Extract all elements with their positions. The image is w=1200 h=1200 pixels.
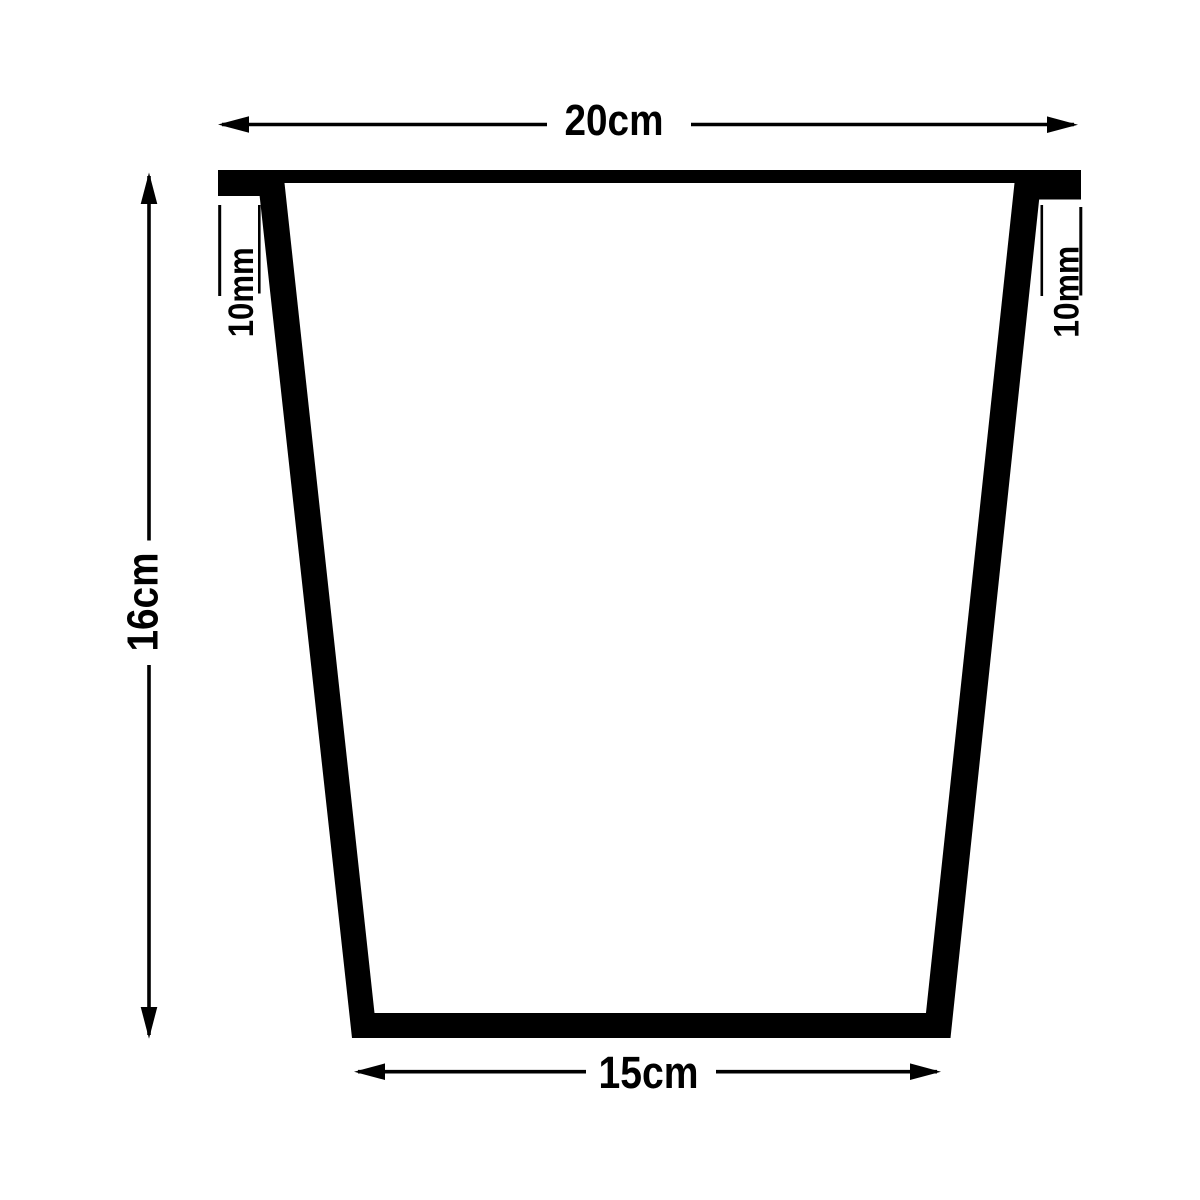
svg-text:20cm: 20cm [565, 97, 664, 145]
svg-text:15cm: 15cm [599, 1047, 699, 1098]
svg-text:10mm: 10mm [221, 247, 261, 337]
svg-text:10mm: 10mm [1046, 246, 1086, 338]
svg-text:16cm: 16cm [120, 553, 168, 652]
